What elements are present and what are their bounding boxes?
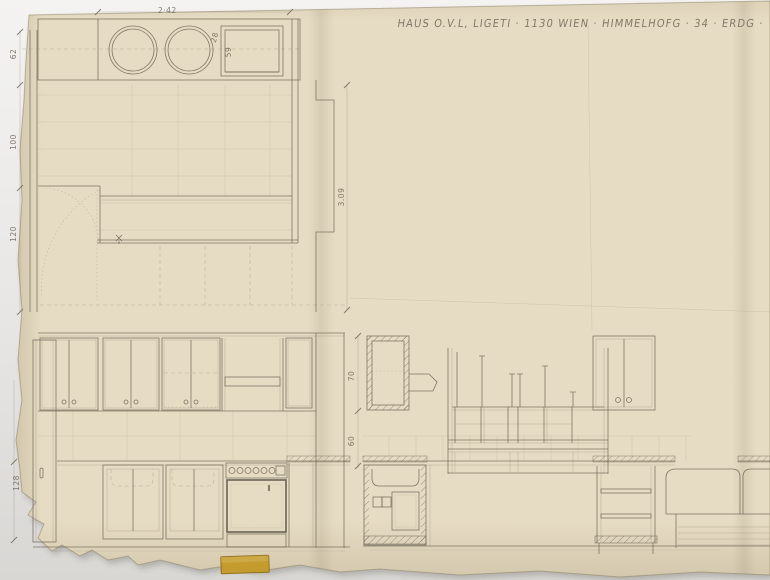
dim-wall-low: 120 [9,226,18,242]
dim-wall-mid: 100 [9,134,18,150]
drawing-scan: HAUS O.V.L, LIGETI · 1130 WIEN · HIMMELH… [0,0,770,580]
blueprint-sheet-svg: HAUS O.V.L, LIGETI · 1130 WIEN · HIMMELH… [0,0,770,580]
dim-upper: 70 [347,371,356,382]
dim-sink-width: 59 [224,47,233,58]
dim-room-depth: 3.09 [337,188,346,207]
dim-counter-length: 2·42 [158,6,177,15]
paper-sheet [16,1,770,577]
title-block: HAUS O.V.L, LIGETI · 1130 WIEN · HIMMELH… [397,17,765,30]
dim-lower: 60 [347,436,356,447]
dim-base-height: 128 [12,475,21,491]
tape-patch [221,555,270,574]
sheet-title: HAUS O.V.L, LIGETI · 1130 WIEN · HIMMELH… [397,17,765,30]
dim-wall-top: 62 [9,49,18,60]
